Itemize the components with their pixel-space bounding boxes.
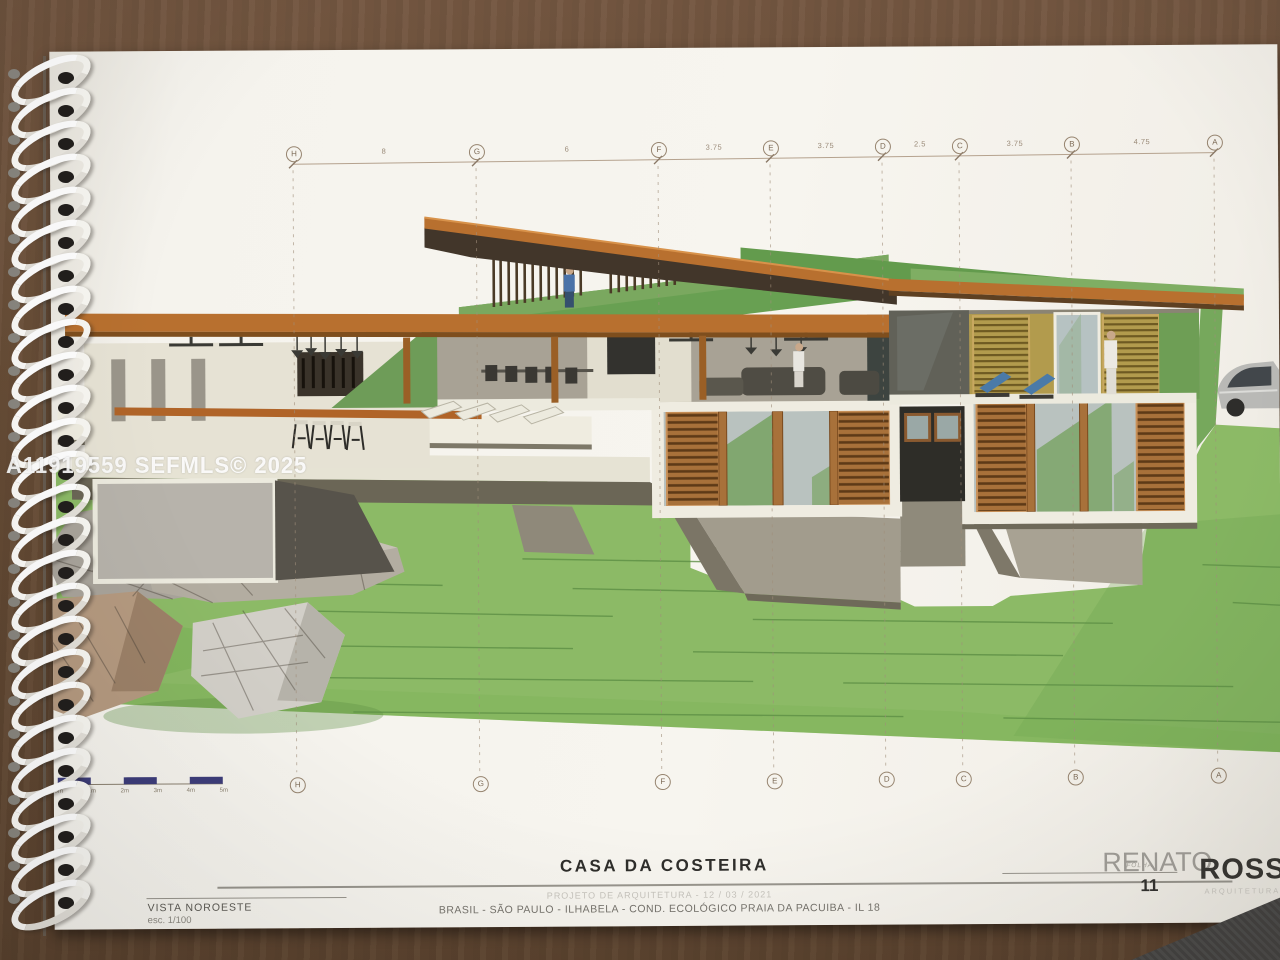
spiral-coil: [0, 621, 100, 647]
dim-h-g: 8: [362, 147, 406, 156]
photo-of-architecture-sheet: H G F E D C B A 8 6 3.75 3.75 2.5 3.75 4…: [0, 0, 1280, 960]
coil-hole-icon: [8, 135, 20, 145]
spiral-coil: [0, 390, 100, 416]
coil-hole-icon: [8, 531, 20, 541]
coil-hole-icon: [8, 399, 20, 409]
coil-hole-icon: [8, 333, 20, 343]
spiral-coil: [0, 555, 100, 581]
coil-hole-icon: [8, 102, 20, 112]
spiral-coil: [0, 423, 100, 449]
logo-first-name: RENATO: [1102, 847, 1212, 879]
dim-c-b: 3.75: [993, 139, 1037, 148]
grid-letter-bottom-g: G: [473, 776, 489, 792]
spiral-coil: [0, 225, 100, 251]
coil-hole-icon: [8, 597, 20, 607]
logo-last-name: ROSSI: [1199, 853, 1280, 887]
coil-hole-icon: [8, 234, 20, 244]
coil-hole-icon: [8, 432, 20, 442]
spiral-coil: [0, 588, 100, 614]
grid-letter-bottom-h: H: [290, 777, 306, 793]
view-label: VISTA NOROESTE: [148, 902, 253, 915]
sheet-title: CASA DA COSTEIRA: [474, 855, 854, 877]
coil-hole-icon: [8, 663, 20, 673]
spiral-coil: [0, 654, 100, 680]
grid-letter-bottom-b: B: [1068, 769, 1084, 785]
grid-letter-top-h: H: [286, 146, 302, 162]
coil-hole-icon: [8, 894, 20, 904]
grid-letter-bottom-f: F: [655, 774, 671, 790]
spiral-coil: [0, 159, 100, 185]
coil-hole-icon: [8, 300, 20, 310]
lower-volume-right: [961, 387, 1197, 530]
mls-watermark: A11919559 SEFMLS© 2025: [6, 452, 307, 479]
spiral-coil: [0, 852, 100, 878]
scale-label-4: 4m: [180, 788, 202, 794]
spiral-coil: [0, 753, 100, 779]
coil-hole-icon: [8, 828, 20, 838]
spiral-coil: [0, 687, 100, 713]
grid-letter-top-e: E: [763, 140, 779, 156]
spiral-coil: [0, 786, 100, 812]
coil-hole-icon: [8, 861, 20, 871]
coil-hole-icon: [8, 267, 20, 277]
coil-hole-icon: [8, 69, 20, 79]
coil-hole-icon: [8, 168, 20, 178]
spiral-coil: [0, 291, 100, 317]
grid-letter-top-g: G: [469, 144, 485, 160]
dim-b-a: 4.75: [1120, 137, 1164, 146]
spiral-coil: [0, 819, 100, 845]
grid-letter-top-b: B: [1064, 136, 1080, 152]
coil-hole-icon: [8, 696, 20, 706]
entry-recess: [900, 406, 966, 501]
right-wing: [889, 309, 1200, 405]
grid-letter-bottom-c: C: [956, 771, 972, 787]
spiral-coil: [0, 93, 100, 119]
grid-letter-bottom-a: A: [1211, 768, 1227, 784]
grid-letter-top-a: A: [1207, 135, 1223, 151]
grid-letter-top-d: D: [875, 139, 891, 155]
spiral-binding: [0, 60, 110, 960]
spiral-coil: [0, 258, 100, 284]
scale-label-5: 5m: [213, 788, 235, 794]
dim-e-d: 3.75: [804, 141, 848, 150]
coil-hole-icon: [8, 729, 20, 739]
logo-tagline: ARQUITETURA: [1204, 886, 1280, 895]
coil-hole-icon: [8, 795, 20, 805]
spiral-coil: [0, 324, 100, 350]
grid-letter-top-f: F: [651, 142, 667, 158]
coil-hole-icon: [8, 630, 20, 640]
coil-hole-icon: [8, 498, 20, 508]
view-scale: esc. 1/100: [148, 915, 192, 926]
scale-label-3: 3m: [147, 788, 169, 794]
dim-d-c: 2.5: [898, 139, 942, 148]
coil-hole-icon: [8, 564, 20, 574]
spiral-coil: [0, 60, 100, 86]
lower-volume-left: [651, 399, 902, 519]
car: [1217, 361, 1279, 416]
coil-hole-icon: [8, 762, 20, 772]
grid-letter-top-c: C: [952, 138, 968, 154]
outdoor-kitchen-pavilion: [84, 319, 438, 469]
spiral-coil: [0, 126, 100, 152]
spiral-coil: [0, 720, 100, 746]
coil-hole-icon: [8, 201, 20, 211]
spiral-coil: [0, 885, 100, 911]
drawing-sheet-page: H G F E D C B A 8 6 3.75 3.75 2.5 3.75 4…: [49, 44, 1280, 929]
grid-letter-bottom-d: D: [879, 772, 895, 788]
spiral-coil: [0, 522, 100, 548]
grid-letter-bottom-e: E: [767, 773, 783, 789]
elevation-rendering: [49, 44, 1280, 936]
spiral-coil: [0, 489, 100, 515]
dim-f-e: 3.75: [692, 143, 736, 152]
dim-g-f: 6: [545, 144, 589, 153]
scale-label-2: 2m: [114, 788, 136, 794]
dimension-line: [289, 149, 1218, 169]
architect-logo: RENATO ROSSI ARQUITETURA: [1102, 842, 1280, 903]
coil-hole-icon: [8, 366, 20, 376]
spiral-coil: [0, 192, 100, 218]
spiral-coil: [0, 357, 100, 383]
